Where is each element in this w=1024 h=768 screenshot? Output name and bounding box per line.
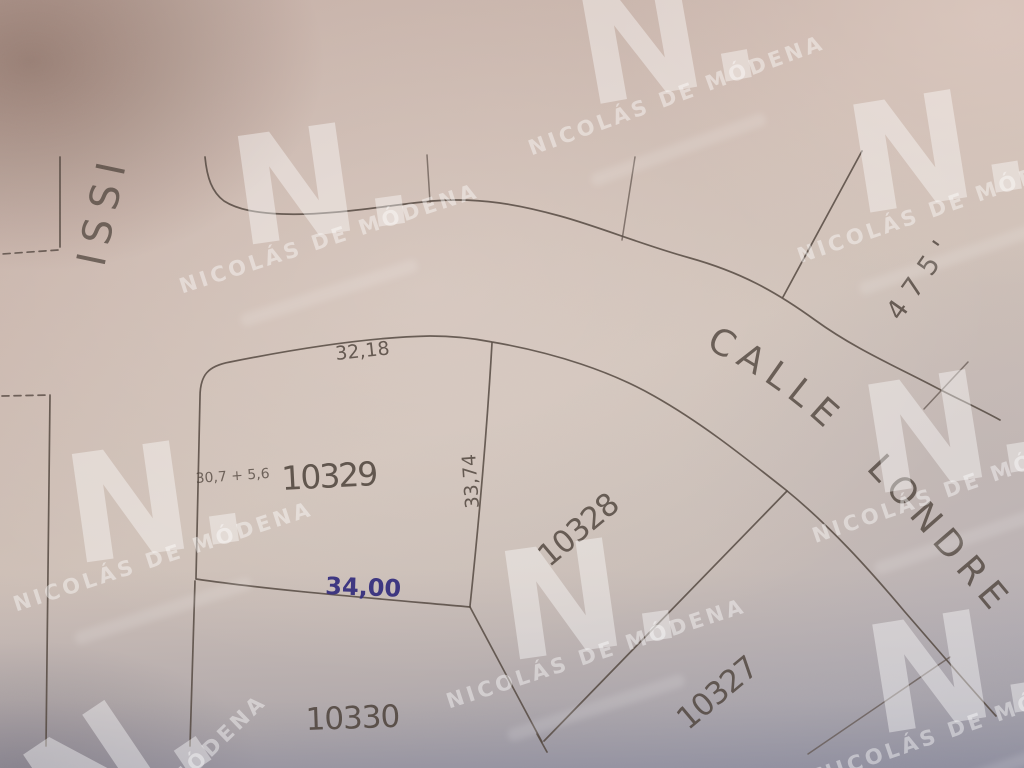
plot-plan-photo: CALLE LONDRE ISSI10329103281032710330475…	[0, 0, 1024, 768]
plot-plan-svg: CALLE LONDRE ISSI10329103281032710330475…	[0, 0, 1024, 768]
photo-grain	[0, 0, 1024, 768]
